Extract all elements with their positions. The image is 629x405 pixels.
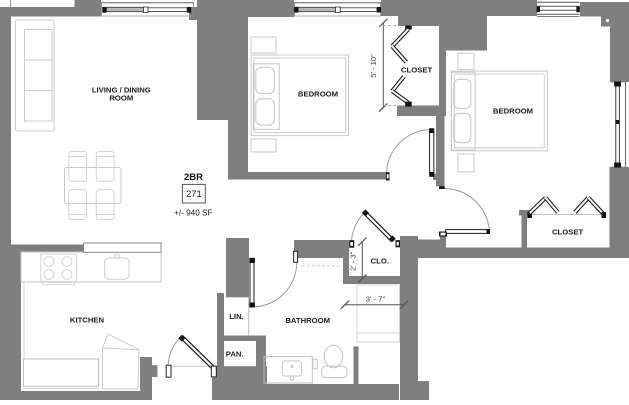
svg-text:ROOM: ROOM bbox=[109, 93, 133, 102]
svg-text:LIN.: LIN. bbox=[229, 312, 244, 321]
svg-text:5' - 10": 5' - 10" bbox=[369, 54, 378, 78]
svg-text:+/- 940 SF: +/- 940 SF bbox=[174, 209, 212, 218]
svg-text:BEDROOM: BEDROOM bbox=[493, 106, 533, 115]
svg-text:2' - 3": 2' - 3" bbox=[349, 251, 358, 271]
svg-text:BEDROOM: BEDROOM bbox=[298, 89, 338, 98]
svg-text:CLOSET: CLOSET bbox=[552, 227, 583, 236]
svg-text:PAN.: PAN. bbox=[226, 350, 244, 359]
svg-text:CLO.: CLO. bbox=[371, 256, 389, 265]
svg-text:CLOSET: CLOSET bbox=[401, 65, 432, 74]
svg-text:271: 271 bbox=[186, 189, 202, 199]
svg-text:2BR: 2BR bbox=[184, 172, 203, 183]
svg-text:KITCHEN: KITCHEN bbox=[70, 315, 105, 324]
svg-text:BATHROOM: BATHROOM bbox=[285, 316, 330, 325]
svg-text:3' - 7": 3' - 7" bbox=[366, 295, 386, 304]
